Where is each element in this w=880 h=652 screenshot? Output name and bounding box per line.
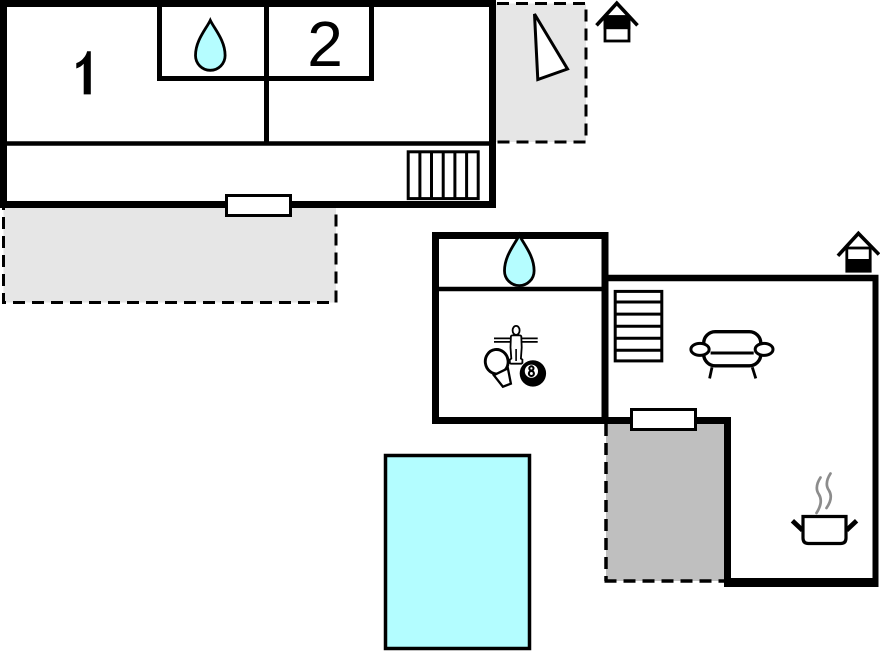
svg-text:2: 2 [307, 8, 343, 80]
